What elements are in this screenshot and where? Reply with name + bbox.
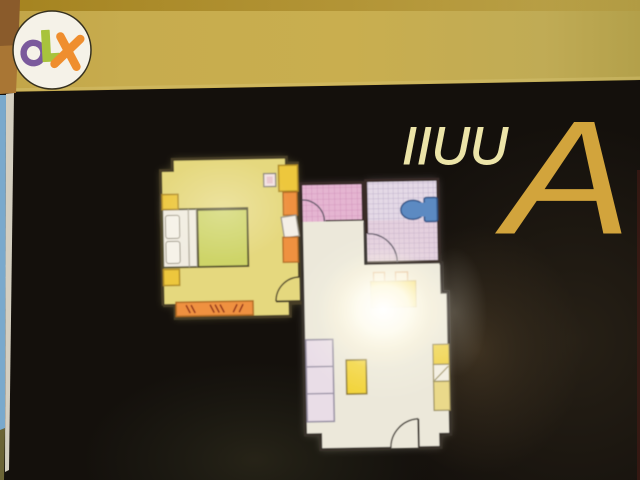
svg-text:A: A <box>495 87 632 268</box>
svg-text:IIUU: IIUU <box>402 117 509 176</box>
